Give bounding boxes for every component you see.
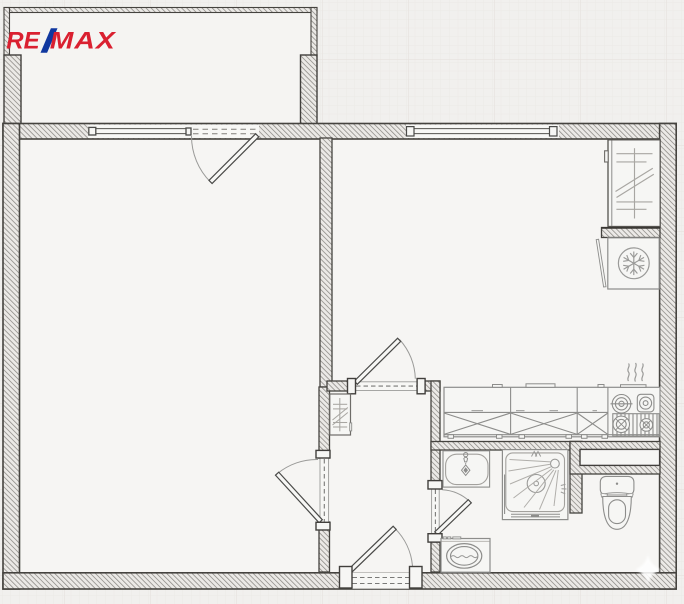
svg-text:MAX: MAX xyxy=(50,27,117,54)
svg-text:RE: RE xyxy=(6,28,40,55)
